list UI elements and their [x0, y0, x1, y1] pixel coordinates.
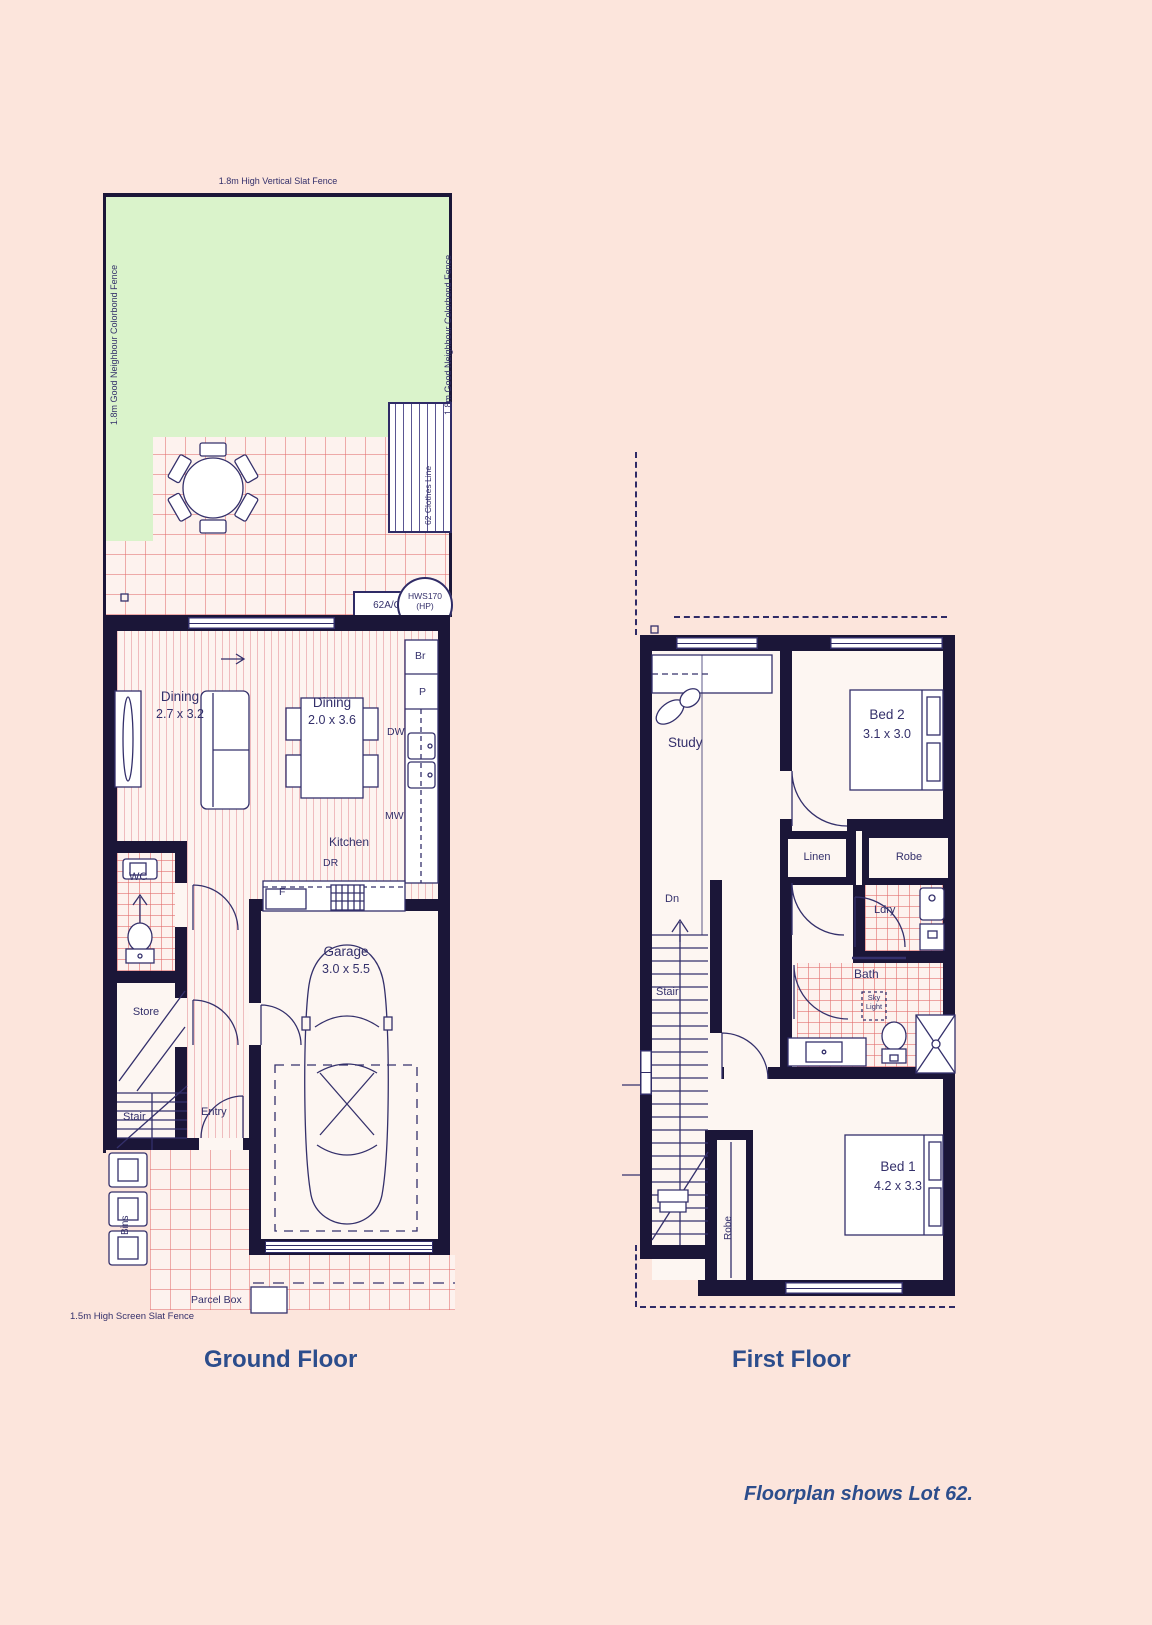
store-label: Store	[123, 1006, 169, 1018]
dryer-label: DR	[323, 858, 338, 870]
robe1-label: Robe	[723, 1216, 734, 1240]
bed2-label: Bed 2	[842, 708, 932, 723]
entry-label: Entry	[201, 1106, 227, 1118]
first-floor-drawing	[610, 590, 962, 1320]
parcel-box	[251, 1287, 287, 1313]
dining-room-dims: 2.0 x 3.6	[295, 714, 369, 728]
door-garage-internal	[261, 1005, 301, 1045]
living-room-label: Dining	[145, 690, 215, 705]
ff-stair-treads	[652, 935, 708, 1245]
microwave-label: MW	[385, 811, 404, 823]
linen-label: Linen	[790, 851, 844, 863]
skylight-label-2: Light	[862, 1003, 886, 1011]
first-floor-plan: Study Bed 2 3.1 x 3.0 Linen Robe Ldry Ba…	[610, 590, 962, 1320]
door-linen	[792, 883, 844, 935]
living-room-dims: 2.7 x 3.2	[139, 708, 221, 722]
toilet	[128, 923, 152, 951]
first-floor-title: First Floor	[732, 1346, 851, 1374]
pantry-label: P	[419, 687, 426, 699]
wc-arrow	[133, 895, 147, 925]
door-bed2	[792, 771, 847, 826]
bed1-label: Bed 1	[858, 1160, 938, 1175]
study-label: Study	[668, 736, 703, 751]
dishwasher-label: DW	[387, 727, 405, 739]
door-bath	[794, 965, 848, 1019]
laundry-trough	[920, 888, 944, 920]
lot-caption: Floorplan shows Lot 62.	[744, 1483, 973, 1506]
ldry-label: Ldry	[874, 904, 895, 916]
door-bed1	[722, 1033, 768, 1079]
ground-floor-title: Ground Floor	[204, 1346, 357, 1374]
kitchen-label: Kitchen	[329, 836, 369, 849]
parcel-box-label: Parcel Box	[191, 1295, 242, 1307]
ground-floor-plan: 62 Clothes Line 62A/C HWS170 (HP)	[103, 193, 455, 1317]
ff-stair-label: Stair	[656, 986, 679, 998]
dining-room-label: Dining	[299, 696, 365, 711]
stair-landing-sill	[658, 1190, 688, 1212]
bath-label: Bath	[854, 968, 879, 981]
bed2-dims: 3.1 x 3.0	[838, 728, 936, 742]
marker-square	[121, 594, 128, 601]
dn-arrow	[672, 920, 688, 942]
marker-square-ff	[651, 626, 658, 633]
fridge-label: F	[279, 887, 285, 899]
bath-toilet	[882, 1022, 906, 1050]
fence-right-label: 1.8m Good Neighbour Colorbond Fence	[443, 255, 453, 415]
bins-label: Bins	[120, 1216, 131, 1235]
fence-left-label: 1.8m Good Neighbour Colorbond Fence	[109, 265, 119, 425]
garage-label: Garage	[303, 945, 389, 960]
dn-label: Dn	[665, 893, 679, 905]
skylight-label-1: Sky	[862, 994, 886, 1002]
slider-arrow	[221, 654, 244, 664]
stair-label: Stair	[123, 1111, 146, 1123]
ground-floor-drawing	[103, 193, 455, 1317]
car	[302, 945, 392, 1224]
door-wc	[193, 885, 238, 930]
outdoor-table	[168, 443, 259, 533]
bins	[109, 1153, 147, 1265]
garage-dims: 3.0 x 5.5	[299, 963, 393, 977]
wc-label: WC	[129, 871, 147, 883]
broom-label: Br	[415, 651, 426, 663]
washing-machine	[920, 924, 944, 950]
door-store	[193, 1000, 238, 1045]
robe2-label: Robe	[872, 851, 946, 863]
fence-bottom-label: 1.5m High Screen Slat Fence	[70, 1312, 194, 1322]
fence-top-label: 1.8m High Vertical Slat Fence	[163, 177, 393, 187]
study-desk	[652, 655, 772, 693]
bed1-dims: 4.2 x 3.3	[854, 1180, 942, 1194]
floorplan-page: 62 Clothes Line 62A/C HWS170 (HP)	[0, 0, 1152, 1625]
